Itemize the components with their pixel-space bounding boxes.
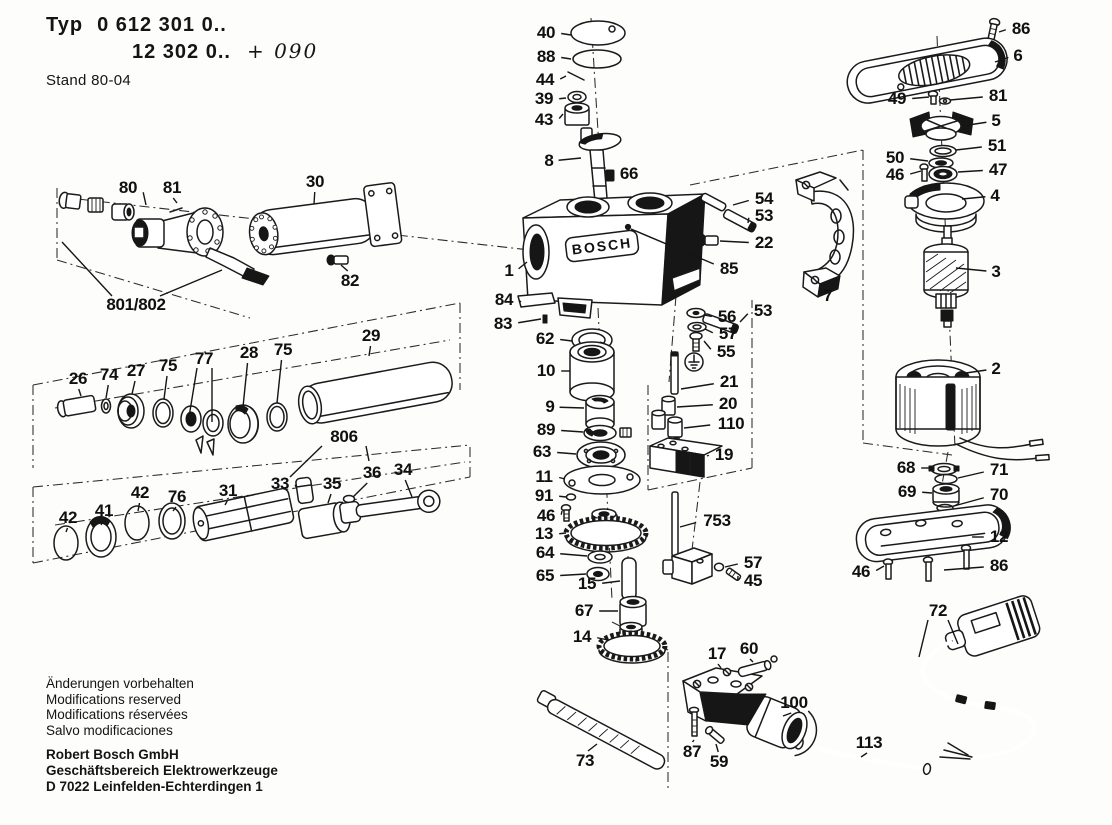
leader-p19 xyxy=(707,455,709,456)
leader-p27 xyxy=(132,381,135,394)
leader-p44 xyxy=(560,76,566,79)
parts-diagram: BOSCH xyxy=(0,0,1112,825)
leader-p75b xyxy=(277,360,282,403)
part-label-p53a: 53 xyxy=(755,206,773,226)
type-number-2: 12 302 0.. xyxy=(132,41,231,63)
leader-p29 xyxy=(369,346,371,356)
part-label-p89: 89 xyxy=(537,420,555,440)
leader-lines xyxy=(66,30,1008,757)
revision-date: Stand 80-04 xyxy=(46,72,318,89)
part-label-p57a: 57 xyxy=(719,324,737,344)
part-label-p55: 55 xyxy=(717,342,735,362)
part-label-p45: 45 xyxy=(744,571,762,591)
leader-p49 xyxy=(912,97,929,99)
leader-p57a xyxy=(705,329,713,333)
part-label-p42a: 42 xyxy=(131,483,149,503)
leader-p33 xyxy=(295,485,296,487)
part-label-p69: 69 xyxy=(898,482,916,502)
leader-p66 xyxy=(613,174,614,175)
footer-block: Änderungen vorbehalten Modifications res… xyxy=(46,676,278,794)
leader-p53b xyxy=(740,314,748,322)
group-hammer-head xyxy=(58,182,402,285)
leader-p17 xyxy=(718,664,721,668)
part-label-p10: 10 xyxy=(537,361,555,381)
part-label-p68: 68 xyxy=(897,458,915,478)
leader-p110 xyxy=(684,425,710,428)
leader-p13 xyxy=(559,533,566,534)
part-label-p83: 83 xyxy=(494,314,512,334)
leader-p753 xyxy=(680,523,696,528)
handwritten-suffix: + 090 xyxy=(247,39,318,63)
leader-p43 xyxy=(559,114,563,119)
part-label-p4: 4 xyxy=(990,186,999,206)
leader-p42a xyxy=(138,503,140,511)
part-label-p31: 31 xyxy=(219,481,237,501)
part-label-p15: 15 xyxy=(578,574,596,594)
part-label-p87: 87 xyxy=(683,742,701,762)
part-label-p82: 82 xyxy=(341,271,359,291)
leader-p22 xyxy=(720,241,749,243)
part-label-p46b: 46 xyxy=(886,165,904,185)
leader-p35 xyxy=(328,494,331,503)
leader-p39 xyxy=(559,98,566,99)
part-label-p81b: 81 xyxy=(989,86,1007,106)
part-label-p753: 753 xyxy=(703,511,730,531)
leader-p60 xyxy=(750,659,753,662)
leader-p46c xyxy=(561,511,562,515)
part-label-p3: 3 xyxy=(991,262,1000,282)
part-label-p12: 12 xyxy=(990,527,1008,547)
company-division: Geschäftsbereich Elektrowerkzeuge xyxy=(46,763,278,779)
leader-p21 xyxy=(681,384,714,389)
part-label-p80: 80 xyxy=(119,178,137,198)
part-label-p35: 35 xyxy=(323,474,341,494)
part-label-p75b: 75 xyxy=(274,340,292,360)
part-label-p81a: 81 xyxy=(163,178,181,198)
part-label-p46d: 46 xyxy=(852,562,870,582)
part-label-p72: 72 xyxy=(929,601,947,621)
leader-p62 xyxy=(560,340,572,342)
leader-p74 xyxy=(106,385,108,398)
part-label-p88: 88 xyxy=(537,47,555,67)
part-label-p75a: 75 xyxy=(159,356,177,376)
part-label-p1: 1 xyxy=(504,261,513,281)
leader-p80 xyxy=(143,192,146,205)
part-label-p51: 51 xyxy=(988,136,1006,156)
leader-p59 xyxy=(716,744,718,752)
part-label-p13: 13 xyxy=(535,524,553,544)
leader-p8 xyxy=(559,158,581,160)
part-label-p28: 28 xyxy=(240,343,258,363)
part-label-p62: 62 xyxy=(536,329,554,349)
part-label-p59: 59 xyxy=(710,752,728,772)
leader-p53a xyxy=(748,218,749,223)
part-label-p42b: 42 xyxy=(59,508,77,528)
part-label-p49: 49 xyxy=(888,89,906,109)
part-label-p73: 73 xyxy=(576,751,594,771)
part-label-p74: 74 xyxy=(100,365,118,385)
leader-p81a xyxy=(173,198,177,203)
leader-p50 xyxy=(910,159,928,161)
leader-p71 xyxy=(958,472,984,478)
type-line-1: Typ0 612 301 0.. xyxy=(46,14,318,37)
part-label-p66: 66 xyxy=(620,164,638,184)
leader-p57b xyxy=(725,564,738,567)
part-label-p110: 110 xyxy=(718,414,745,434)
leader-p88 xyxy=(561,58,571,60)
leader-p46b xyxy=(910,171,921,174)
part-label-p40: 40 xyxy=(537,23,555,43)
type-label: Typ xyxy=(46,14,83,36)
part-label-p76: 76 xyxy=(168,487,186,507)
part-label-p801: 801/802 xyxy=(106,295,165,315)
leader-p64 xyxy=(560,554,587,556)
part-label-p14: 14 xyxy=(573,627,591,647)
part-label-p29: 29 xyxy=(362,326,380,346)
leader-p42b xyxy=(66,528,68,532)
part-label-p86a: 86 xyxy=(1012,19,1030,39)
company-name: Robert Bosch GmbH xyxy=(46,747,278,763)
part-label-p33: 33 xyxy=(271,474,289,494)
leader-p40 xyxy=(561,34,571,36)
leader-p51 xyxy=(956,147,982,150)
part-label-p2: 2 xyxy=(991,359,1000,379)
leader-p26 xyxy=(79,389,81,396)
type-line-2: 12 302 0..+ 090 xyxy=(132,39,318,64)
part-label-p77: 77 xyxy=(195,349,213,369)
leader-p47 xyxy=(958,171,983,173)
part-label-p5: 5 xyxy=(991,111,1000,131)
part-label-p8: 8 xyxy=(544,151,553,171)
leader-p20 xyxy=(677,405,713,407)
part-label-p27: 27 xyxy=(127,361,145,381)
part-label-p46c: 46 xyxy=(537,506,555,526)
part-label-p100: 100 xyxy=(780,693,807,713)
leader-p86a xyxy=(999,30,1006,32)
part-label-p9: 9 xyxy=(545,397,554,417)
part-label-p113: 113 xyxy=(856,733,883,753)
group-top-shaft xyxy=(565,21,625,224)
part-label-p47: 47 xyxy=(989,160,1007,180)
title-block: Typ0 612 301 0.. 12 302 0..+ 090 Stand 8… xyxy=(46,14,318,89)
part-label-p22: 22 xyxy=(755,233,773,253)
leader-p63 xyxy=(557,453,576,455)
company-address: D 7022 Leinfelden-Echterdingen 1 xyxy=(46,779,278,795)
part-label-p67: 67 xyxy=(575,601,593,621)
leader-p89 xyxy=(561,431,583,433)
group-handle xyxy=(796,172,853,297)
part-label-p11: 11 xyxy=(535,467,552,487)
part-label-p44: 44 xyxy=(536,70,554,90)
leader-p9 xyxy=(560,407,584,408)
note-de: Änderungen vorbehalten xyxy=(46,676,278,692)
part-label-p41: 41 xyxy=(95,501,113,521)
part-label-p60: 60 xyxy=(740,639,758,659)
group-motor xyxy=(844,18,1049,461)
leader-p54 xyxy=(733,201,749,206)
leader-p75a xyxy=(164,376,167,399)
part-label-p84: 84 xyxy=(495,290,513,310)
leader-p28 xyxy=(243,363,248,407)
part-label-p85: 85 xyxy=(720,259,738,279)
note-en: Modifications reserved xyxy=(46,692,278,708)
part-label-p34: 34 xyxy=(394,460,412,480)
part-label-p86c: 86 xyxy=(990,556,1008,576)
leader-p83 xyxy=(518,319,541,323)
leader-p30 xyxy=(314,192,315,204)
part-label-p53b: 53 xyxy=(754,301,772,321)
note-fr: Modifications réservées xyxy=(46,707,278,723)
leader-p73 xyxy=(588,744,597,751)
note-es: Salvo modificaciones xyxy=(46,723,278,739)
part-label-p806: 806 xyxy=(330,427,357,447)
part-label-p7: 7 xyxy=(823,286,832,306)
leader-p46d xyxy=(876,566,884,571)
part-label-p30: 30 xyxy=(306,172,324,192)
part-label-p17: 17 xyxy=(708,644,726,664)
part-label-p64: 64 xyxy=(536,543,554,563)
leader-p91 xyxy=(559,496,566,497)
part-label-p70: 70 xyxy=(990,485,1008,505)
part-label-p26: 26 xyxy=(69,369,87,389)
part-label-p57b: 57 xyxy=(744,553,762,573)
part-label-p65: 65 xyxy=(536,566,554,586)
group-cord-set xyxy=(743,594,1042,775)
leader-p81b xyxy=(950,97,983,100)
part-label-p19: 19 xyxy=(715,445,733,465)
leader-p36 xyxy=(353,483,367,497)
part-label-p91: 91 xyxy=(535,486,553,506)
part-label-p71: 71 xyxy=(990,460,1008,480)
part-label-p6: 6 xyxy=(1013,46,1022,66)
part-label-p63: 63 xyxy=(533,442,551,462)
part-label-p21: 21 xyxy=(720,372,738,392)
leader-p69 xyxy=(922,492,932,493)
type-number-1: 0 612 301 0.. xyxy=(97,14,227,36)
part-label-p20: 20 xyxy=(719,394,737,414)
part-label-p39: 39 xyxy=(535,89,553,109)
part-label-p36: 36 xyxy=(363,463,381,483)
group-bottom-housing xyxy=(535,656,777,771)
leader-p55 xyxy=(704,341,711,349)
part-label-p43: 43 xyxy=(535,110,553,130)
